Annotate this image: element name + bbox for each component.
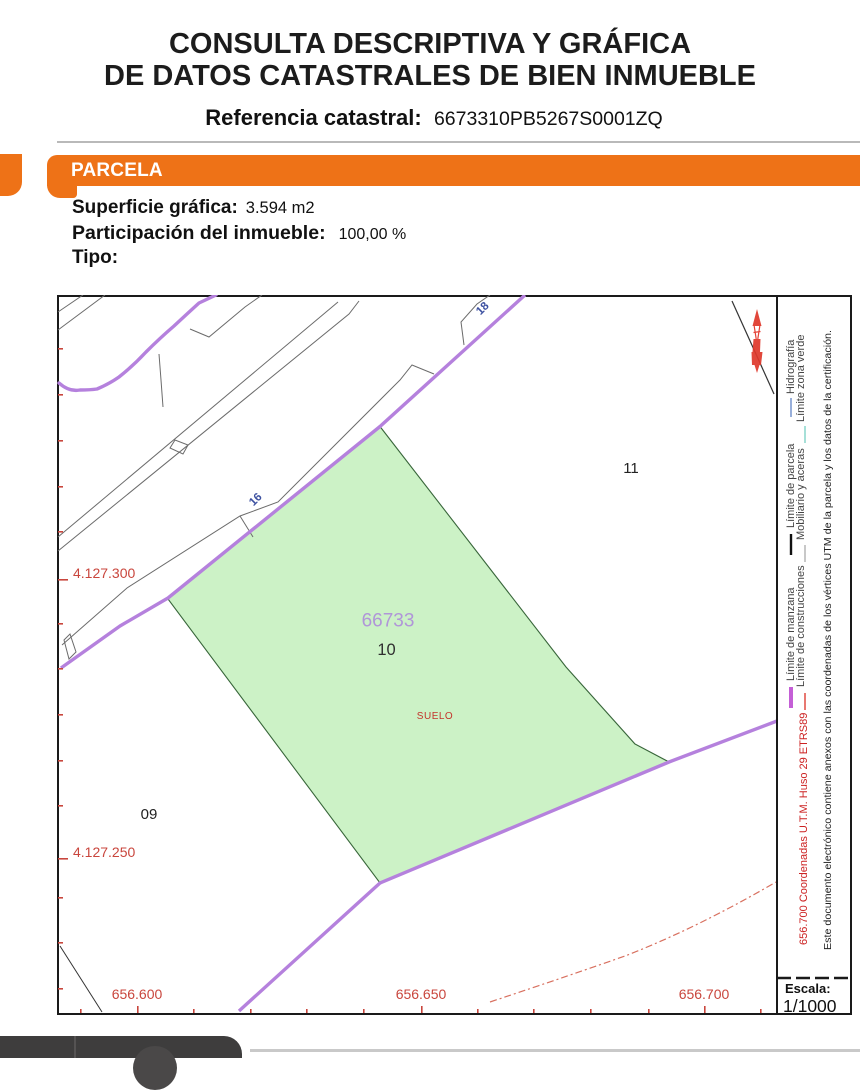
- svg-text:Este documento electrónico con: Este documento electrónico contiene anex…: [823, 330, 834, 950]
- svg-text:66733: 66733: [362, 611, 415, 632]
- svg-text:656.700: 656.700: [679, 986, 730, 1002]
- svg-text:4.127.300: 4.127.300: [73, 565, 135, 581]
- svg-text:Límite de construcciones: Límite de construcciones: [795, 565, 807, 687]
- svg-text:4.127.250: 4.127.250: [73, 844, 135, 860]
- svg-text:Escala:: Escala:: [785, 981, 831, 996]
- svg-text:656.700 Coordenadas U.T.M. Hus: 656.700 Coordenadas U.T.M. Huso 29 ETRS8…: [798, 713, 810, 945]
- svg-text:10: 10: [377, 641, 395, 659]
- svg-text:Mobiliario y aceras: Mobiliario y aceras: [795, 448, 807, 540]
- svg-text:656.650: 656.650: [396, 986, 447, 1002]
- svg-text:1/1000: 1/1000: [783, 996, 837, 1015]
- svg-text:16: 16: [247, 491, 265, 509]
- svg-text:18: 18: [474, 300, 492, 318]
- svg-text:Límite zona verde: Límite zona verde: [795, 335, 807, 422]
- svg-text:11: 11: [623, 460, 639, 477]
- svg-text:656.600: 656.600: [112, 986, 163, 1002]
- svg-text:SUELO: SUELO: [417, 711, 453, 722]
- svg-text:09: 09: [141, 806, 158, 823]
